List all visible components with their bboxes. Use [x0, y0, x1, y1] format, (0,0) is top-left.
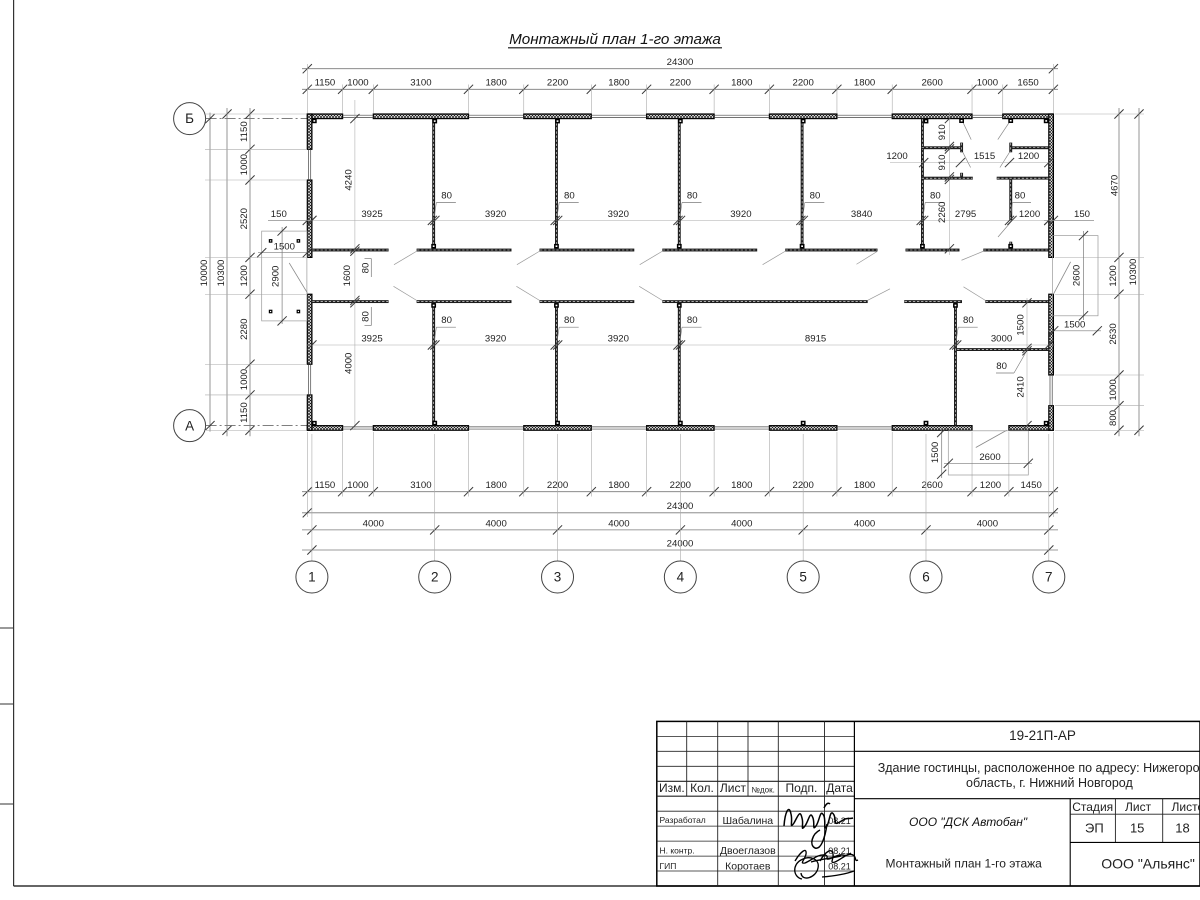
svg-text:80: 80 — [441, 191, 452, 202]
svg-text:6: 6 — [922, 570, 930, 585]
svg-text:80: 80 — [996, 361, 1007, 372]
svg-text:2630: 2630 — [1108, 323, 1119, 344]
svg-text:1800: 1800 — [731, 480, 752, 491]
svg-text:1150: 1150 — [239, 402, 250, 423]
svg-text:Здание гостинцы, расположенное: Здание гостинцы, расположенное по адресу… — [878, 761, 1200, 775]
svg-text:10300: 10300 — [1128, 259, 1139, 286]
svg-text:4000: 4000 — [731, 518, 752, 529]
svg-text:1800: 1800 — [854, 78, 875, 89]
svg-text:1800: 1800 — [485, 480, 506, 491]
svg-text:2600: 2600 — [1072, 265, 1083, 286]
svg-text:3000: 3000 — [991, 334, 1012, 345]
svg-text:Стадия: Стадия — [1072, 800, 1113, 814]
svg-text:3920: 3920 — [608, 209, 629, 220]
svg-text:1800: 1800 — [608, 78, 629, 89]
svg-text:Н. контр.: Н. контр. — [660, 846, 695, 856]
svg-text:3920: 3920 — [485, 334, 506, 345]
svg-text:2200: 2200 — [792, 78, 813, 89]
svg-text:Монтажный план 1-го этажа: Монтажный план 1-го этажа — [886, 857, 1043, 871]
svg-text:5: 5 — [799, 570, 807, 585]
svg-text:2200: 2200 — [670, 78, 691, 89]
svg-text:Лист: Лист — [720, 781, 747, 795]
svg-text:1650: 1650 — [1017, 78, 1038, 89]
svg-text:1800: 1800 — [854, 480, 875, 491]
svg-text:800: 800 — [1108, 410, 1119, 426]
svg-text:2600: 2600 — [921, 78, 942, 89]
svg-text:80: 80 — [564, 315, 575, 326]
svg-text:24000: 24000 — [667, 538, 694, 549]
svg-text:1200: 1200 — [239, 265, 250, 286]
svg-text:3925: 3925 — [361, 209, 382, 220]
svg-text:2520: 2520 — [239, 208, 250, 229]
svg-text:4240: 4240 — [344, 169, 355, 190]
svg-text:1500: 1500 — [274, 241, 295, 252]
svg-text:№док.: №док. — [751, 786, 774, 795]
svg-text:ООО "Альянс": ООО "Альянс" — [1101, 855, 1195, 871]
svg-text:08.21: 08.21 — [828, 816, 851, 826]
svg-text:3840: 3840 — [851, 209, 872, 220]
svg-text:80: 80 — [963, 315, 974, 326]
svg-text:24300: 24300 — [667, 501, 694, 512]
svg-text:4000: 4000 — [344, 353, 355, 374]
svg-text:3: 3 — [554, 570, 562, 585]
svg-text:2900: 2900 — [270, 266, 281, 287]
svg-text:910: 910 — [937, 124, 948, 140]
svg-text:1800: 1800 — [485, 78, 506, 89]
svg-text:4000: 4000 — [977, 518, 998, 529]
svg-text:10300: 10300 — [216, 260, 227, 287]
svg-text:1450: 1450 — [1020, 480, 1041, 491]
svg-text:7: 7 — [1045, 570, 1053, 585]
svg-text:1515: 1515 — [974, 151, 995, 162]
svg-text:3925: 3925 — [361, 334, 382, 345]
svg-text:18: 18 — [1175, 821, 1189, 836]
svg-text:08.21: 08.21 — [828, 861, 851, 871]
svg-text:3920: 3920 — [608, 334, 629, 345]
svg-text:80: 80 — [360, 311, 371, 322]
svg-text:1200: 1200 — [886, 151, 907, 162]
svg-text:Б: Б — [185, 111, 194, 126]
svg-text:24300: 24300 — [667, 57, 694, 68]
svg-text:1000: 1000 — [239, 154, 250, 175]
svg-text:область, г. Нижний Новгород: область, г. Нижний Новгород — [966, 776, 1133, 790]
svg-text:Изм.: Изм. — [659, 781, 685, 795]
svg-text:1200: 1200 — [980, 480, 1001, 491]
svg-text:15: 15 — [1130, 821, 1144, 836]
svg-text:2280: 2280 — [239, 319, 250, 340]
svg-text:80: 80 — [930, 191, 941, 202]
svg-text:4000: 4000 — [608, 518, 629, 529]
svg-text:Лист: Лист — [1125, 800, 1152, 814]
svg-text:1500: 1500 — [1015, 314, 1026, 335]
svg-text:4: 4 — [677, 570, 685, 585]
svg-text:2600: 2600 — [979, 452, 1000, 463]
svg-text:1800: 1800 — [731, 78, 752, 89]
svg-text:1000: 1000 — [347, 78, 368, 89]
svg-text:1150: 1150 — [239, 121, 250, 142]
svg-text:2260: 2260 — [937, 202, 948, 223]
svg-text:80: 80 — [360, 263, 371, 274]
svg-text:19-21П-АР: 19-21П-АР — [1009, 728, 1076, 743]
svg-text:Шабалина: Шабалина — [722, 815, 773, 827]
svg-text:Кол.: Кол. — [690, 781, 714, 795]
svg-text:10000: 10000 — [199, 260, 210, 287]
svg-text:3100: 3100 — [410, 78, 431, 89]
svg-text:1200: 1200 — [1019, 209, 1040, 220]
svg-text:1150: 1150 — [315, 78, 336, 89]
svg-text:1500: 1500 — [1064, 319, 1085, 330]
svg-text:1150: 1150 — [315, 480, 336, 491]
svg-text:2200: 2200 — [547, 78, 568, 89]
svg-text:1000: 1000 — [977, 78, 998, 89]
svg-text:Подп.: Подп. — [785, 781, 817, 795]
svg-text:Коротаев: Коротаев — [725, 860, 771, 872]
svg-text:1: 1 — [308, 570, 316, 585]
svg-text:3100: 3100 — [410, 480, 431, 491]
svg-text:3920: 3920 — [485, 209, 506, 220]
svg-text:1200: 1200 — [1108, 265, 1119, 286]
svg-text:А: А — [185, 418, 194, 433]
svg-text:1000: 1000 — [239, 369, 250, 390]
svg-text:2795: 2795 — [955, 209, 976, 220]
svg-text:150: 150 — [1074, 209, 1090, 220]
svg-text:Монтажный план 1-го этажа: Монтажный план 1-го этажа — [509, 31, 721, 48]
svg-text:ГИП: ГИП — [660, 861, 677, 871]
svg-text:1600: 1600 — [342, 265, 353, 286]
svg-text:8915: 8915 — [805, 334, 826, 345]
svg-text:2600: 2600 — [921, 480, 942, 491]
svg-text:ЭП: ЭП — [1085, 821, 1104, 836]
svg-text:150: 150 — [271, 209, 287, 220]
svg-text:80: 80 — [810, 191, 821, 202]
svg-text:80: 80 — [687, 315, 698, 326]
svg-text:1500: 1500 — [930, 442, 941, 463]
svg-text:1000: 1000 — [1108, 379, 1119, 400]
svg-text:1000: 1000 — [347, 480, 368, 491]
svg-text:80: 80 — [441, 315, 452, 326]
svg-text:Дата: Дата — [826, 781, 853, 795]
svg-text:2: 2 — [431, 570, 439, 585]
svg-text:80: 80 — [564, 191, 575, 202]
svg-text:1200: 1200 — [1018, 151, 1039, 162]
svg-text:4000: 4000 — [485, 518, 506, 529]
svg-text:80: 80 — [687, 191, 698, 202]
svg-text:2410: 2410 — [1015, 376, 1026, 397]
svg-text:80: 80 — [1015, 191, 1026, 202]
svg-text:ООО "ДСК Автобан": ООО "ДСК Автобан" — [909, 815, 1028, 829]
svg-text:3920: 3920 — [730, 209, 751, 220]
svg-text:4000: 4000 — [363, 518, 384, 529]
svg-text:4670: 4670 — [1109, 175, 1120, 196]
svg-text:Листов: Листов — [1172, 800, 1200, 814]
svg-text:Двоеглазов: Двоеглазов — [720, 845, 776, 857]
svg-text:1800: 1800 — [608, 480, 629, 491]
svg-text:Разработал: Разработал — [660, 815, 706, 825]
svg-text:4000: 4000 — [854, 518, 875, 529]
